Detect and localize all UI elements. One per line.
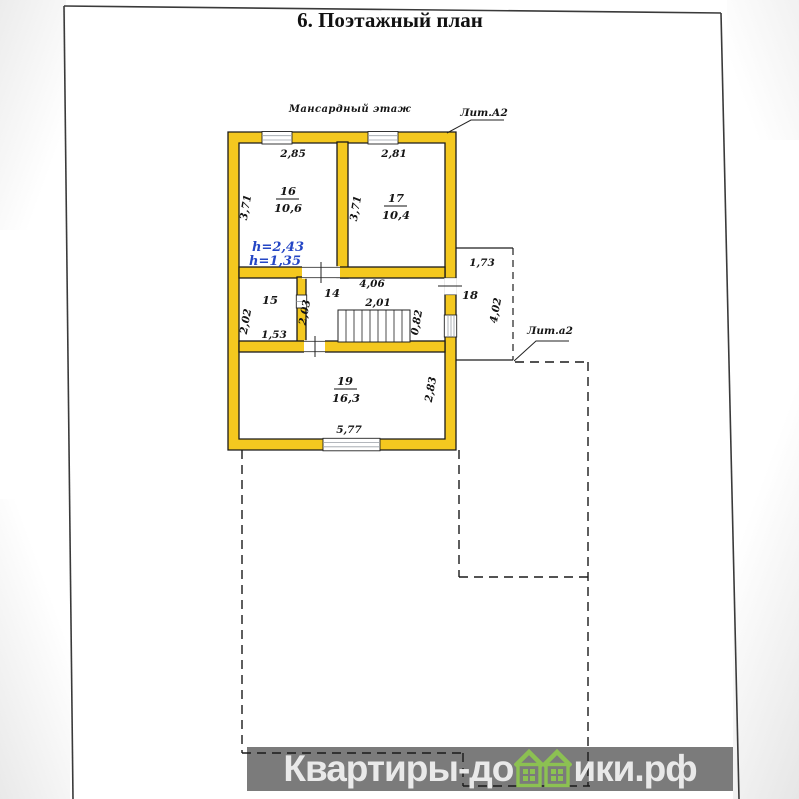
door-right-wall-to-annex	[438, 278, 462, 295]
room17-number: 17	[388, 191, 404, 205]
dim-stair-depth: 0,82	[409, 309, 425, 336]
dim-room14-width: 4,06	[359, 278, 385, 290]
dim-room17-depth: 3,71	[348, 195, 364, 222]
wall-room16-room17	[337, 142, 348, 278]
leader-lit-main	[447, 120, 504, 133]
dim-room16-width: 2,85	[279, 148, 306, 160]
room16-number: 16	[280, 184, 296, 198]
window-right-wall	[444, 315, 456, 337]
room17-area: 10,4	[382, 208, 410, 222]
dim-room18-width: 1,73	[469, 257, 495, 269]
dim-room19-width: 5,77	[336, 424, 362, 436]
scanned-floor-plan-page: 6. Поэтажный план	[0, 0, 799, 799]
height-note-2: h=1,35	[249, 254, 301, 269]
floor-plan-drawing: Мансардный этаж Лит.А2 Лит.а2 2,85 2,81 …	[0, 0, 799, 799]
room19-area: 16,3	[332, 391, 360, 405]
litera-main-label: Лит.А2	[459, 107, 508, 119]
floor-name-label: Мансардный этаж	[288, 104, 412, 115]
window-room16	[262, 132, 292, 145]
dim-room16-depth: 3,71	[238, 194, 254, 221]
height-note-1: h=2,43	[252, 240, 304, 255]
room15-number: 15	[262, 293, 278, 307]
room19-number: 19	[337, 374, 353, 388]
window-room19	[323, 438, 380, 451]
room18-number: 18	[462, 288, 478, 302]
dim-room15-width: 1,53	[261, 329, 287, 341]
dim-room19-depth: 2,83	[423, 376, 439, 404]
first-floor-dashed-outline	[242, 362, 590, 786]
page-frame	[64, 6, 739, 799]
litera-annex-label: Лит.а2	[526, 325, 573, 337]
dim-stair-width: 2,01	[364, 297, 391, 309]
houses-icon	[514, 747, 572, 789]
watermark-text-right: ики.рф	[573, 748, 696, 790]
room14-number: 14	[324, 286, 340, 300]
watermark-text-left: Квартиры-до	[283, 748, 513, 790]
dim-room17-width: 2,81	[380, 148, 407, 160]
watermark: Квартиры-до ики.рф	[247, 747, 733, 791]
leader-lit-annex	[514, 341, 569, 361]
door-room16-hall	[302, 262, 340, 283]
dim-room18-depth: 4,02	[488, 297, 504, 324]
stairs	[338, 310, 410, 342]
dim-room15-depth: 2,02	[238, 308, 254, 336]
window-room17	[368, 132, 398, 145]
door-hall-room19	[304, 336, 325, 357]
wall-mid-lower	[239, 341, 445, 352]
room16-area: 10,6	[274, 201, 302, 215]
